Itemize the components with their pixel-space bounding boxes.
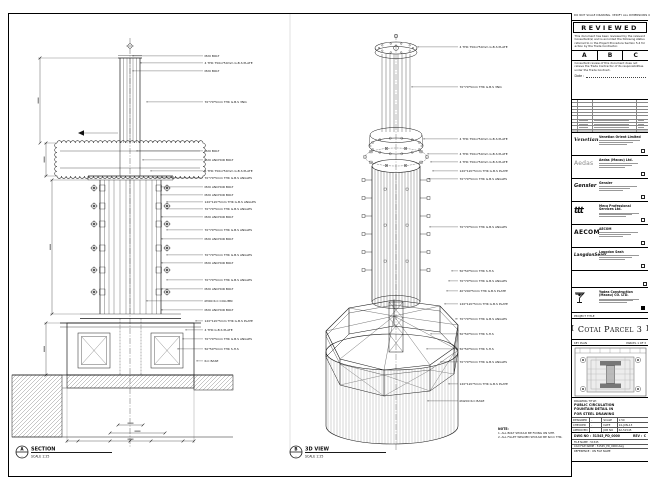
address-lines: [599, 165, 632, 166]
consultant-row-langdon-seah: LangdonSeah Langdon Seah: [572, 248, 648, 271]
leader-label: 70*70*5mm THK G.B.S 3NO.: [460, 85, 503, 89]
leader-label: Ø4200 R.C BASE: [460, 398, 485, 403]
review-checkbox[interactable]: [641, 264, 645, 268]
leader-label: 70*70*5mm THK G.B.S ANGLES: [460, 177, 508, 181]
leader-label: 40*200*5mm THK G.B.S PLATE: [460, 289, 507, 293]
address-lines: [599, 214, 632, 215]
leader-label: 70*70*5mm THK G.B.S ANGLES: [460, 360, 508, 364]
stamp-option-b: B: [598, 51, 624, 60]
address-lines: [599, 232, 638, 233]
consultant-name: AECOM: [599, 228, 646, 232]
column-ornament-icon: ♜: [572, 325, 575, 333]
aecom-logo: AECOM: [574, 227, 599, 246]
reference-row: REFERENCE : ON FILE NAME: [572, 448, 648, 453]
address-lines: [599, 257, 632, 258]
consultant-name: Gensler: [599, 182, 646, 186]
address-lines: [599, 300, 633, 301]
iso-scale: SCALE 1:25: [305, 455, 323, 459]
section-view-title: SECTION: [31, 447, 55, 453]
aedas-logo: Aedas: [574, 158, 599, 177]
address-lines: [599, 167, 625, 168]
consultant-name: Venetian Orient Limited: [599, 136, 646, 140]
stamp-paragraph-1: This document has been reviewed by the r…: [572, 34, 648, 50]
rev-label: REV :: [633, 434, 642, 438]
consultant-row-gensler: Gensler Gensler: [572, 179, 648, 202]
leader-label: Ø300 R.C COLUMN: [205, 298, 233, 303]
leader-label: 70*70*5mm THK G.B.S ANGLES: [460, 317, 508, 321]
consultant-row-empty: [572, 271, 648, 288]
leader-label: 70*70*5mm THK G.B.S ANGLES: [460, 279, 508, 283]
leader-label: 70*70*5mm THK G.B.S ANGLES: [460, 225, 508, 229]
leader-label: 70*70*5mm THK G.B.S ANGLES: [205, 228, 253, 232]
consultant-row-meca: ttt Meca Professional Services Ltd.: [572, 202, 648, 225]
address-lines: [599, 163, 638, 164]
address-lines: [599, 236, 623, 237]
project-title-box: ♜ Cotai Parcel 3 ♜: [572, 319, 648, 340]
stamp-option-a: A: [572, 51, 598, 60]
leader-label: 70*70*5mm THK G.B.S ANGLES: [205, 337, 253, 341]
spare-box: [572, 462, 648, 477]
note-block: NOTE:1. ALL BOLT SHOULD BE FIXING ON SIT…: [498, 427, 563, 439]
glass-icon: [574, 292, 585, 305]
address-lines: [599, 234, 631, 235]
reference-value: ON FILE NAME: [592, 450, 611, 453]
contractor-block: Yadea Construction (Macau) CO. LTD.: [572, 288, 648, 313]
leader-label: 70*70*5mm THK G.B.S ANGLES: [205, 253, 253, 257]
leader-label: M20 ANCHOR BOLT: [205, 237, 234, 241]
drawing-title-line: FOR STEEL DRAWING: [574, 412, 646, 416]
address-lines: [599, 188, 630, 189]
drawing-canvas: M20 BOLT4 THK 750x750mm G.B.S PLATEM20 B…: [8, 13, 571, 477]
leader-label: 120*120*5mm THK G.B.S PLATE: [460, 169, 509, 173]
dwg-no: 51545_PD_0000: [593, 434, 620, 438]
leader-label: M20 ANCHOR BOLT: [205, 158, 234, 162]
column-ornament-icon: ♜: [645, 325, 648, 333]
leader-label: 50*50*5mm THK S.H.S: [205, 347, 239, 351]
note-line: 2. ALL FILLET WELDED SHOULD BE 6mm THK.: [498, 435, 563, 439]
contractor-name: Yadea Construction (Macau) CO. LTD.: [599, 291, 646, 298]
review-checkbox[interactable]: [641, 172, 645, 176]
iso-view: [326, 34, 458, 450]
title-block-column: DO NOT SCALE DRAWING. VERIFY ALL DIMENSI…: [571, 13, 648, 477]
gensler-logo: Gensler: [574, 181, 599, 200]
leader-label: 50*50*5mm THK S.H.S: [460, 269, 494, 273]
leader-label: 120*120*5mm THK G.B.S PLATE: [460, 302, 509, 306]
leader-label: 4 THK G.B.S PLATE: [205, 328, 233, 332]
iso-title: B-3D VIEWSCALE 1:25: [290, 446, 386, 459]
leader-label: 120*120*5mm THK G.B.S PLATE: [205, 319, 254, 323]
leader-label: 50*50*5mm THK S.H.S: [460, 332, 494, 336]
stamp-date-row: Date :: [572, 73, 648, 80]
leader-label: M20 ANCHOR BOLT: [205, 308, 234, 312]
reviewed-stamp: REVIEWED This document has been reviewed…: [572, 21, 648, 100]
key-plan-caption: PARCEL 1 OF 3: [626, 341, 646, 345]
iso-view-title: 3D VIEW: [305, 447, 330, 453]
iso-bubble: B: [294, 447, 297, 452]
leader-label: 120*120*5mm THK G.B.S ANGLES: [205, 200, 257, 204]
key-plan-thumbnail: [574, 347, 647, 397]
leader-label: M20 BOLT: [205, 69, 220, 73]
review-checkbox[interactable]: [643, 282, 647, 286]
leader-label: 4 THK 750x750mm G.B.S PLATE: [205, 61, 253, 65]
address-lines: [599, 259, 625, 260]
leader-label: 50*50*5mm THK S.H.S: [460, 347, 494, 351]
leader-label: 4 THK 750x750mm G.B.S PLATE: [460, 152, 508, 156]
contractor-mark: [641, 306, 645, 310]
leader-label: M20 ANCHOR BOLT: [205, 287, 234, 291]
dwg-no-label: DWG NO :: [574, 434, 591, 438]
address-lines: [599, 190, 623, 191]
leader-label: M20 ANCHOR BOLT: [205, 215, 234, 219]
leader-label: M20 ANCHOR BOLT: [205, 185, 234, 189]
rev-value: C: [644, 434, 646, 438]
drawing-sheet: M20 BOLT4 THK 750x750mm G.B.S PLATEM20 B…: [0, 0, 650, 488]
drawing-title-block: DRAWING TITLE: PUBLIC CIRCULATION FOUNTA…: [572, 398, 648, 462]
stamp-date-label: Date :: [575, 74, 585, 78]
leader-label: 4 THK 750x750mm G.B.S PLATE: [205, 169, 253, 173]
leader-label: 4 THK 750x750mm G.B.S PLATE: [460, 45, 508, 49]
leader-label: R.C BASE: [205, 359, 219, 363]
leader-label: 4 THK 750x750mm G.B.S PLATE: [460, 160, 508, 164]
address-lines: [599, 140, 640, 141]
review-checkbox[interactable]: [641, 241, 645, 245]
review-checkbox[interactable]: [641, 218, 645, 222]
leader-label: M20 BOLT: [205, 149, 220, 153]
address-lines: [599, 142, 633, 143]
consultant-row-aedas: Aedas Aedas (Macau) Ltd.: [572, 156, 648, 179]
drawing-title: PUBLIC CIRCULATION FOUNTAIN DETAIL IN FO…: [572, 403, 648, 417]
langdon-seah-logo: LangdonSeah: [574, 250, 599, 269]
section-view: [12, 14, 290, 477]
reference-label: REFERENCE :: [574, 450, 591, 453]
leader-label: 4 THK 750x750mm G.B.S PLATE: [460, 137, 508, 141]
leader-label: M20 ANCHOR BOLT: [205, 261, 234, 265]
dwg-no-row: DWG NO : 51545_PD_0000 REV : C: [572, 432, 648, 439]
section-bubble: A: [20, 447, 24, 452]
leader-label: M20 BOLT: [205, 54, 220, 58]
review-checkbox[interactable]: [641, 149, 645, 153]
address-lines: [599, 302, 627, 303]
section-title: A-SECTIONSCALE 1:25: [16, 446, 112, 459]
stamp-paragraph-2: Consultant review of this document does …: [572, 61, 648, 73]
address-lines: [599, 216, 626, 217]
stamp-date-line: [586, 75, 645, 78]
revision-table: [572, 100, 648, 133]
iso-labels: 4 THK 750x750mm G.B.S PLATE70*70*5mm THK…: [412, 45, 509, 403]
leader-label: 70*70*5mm THK G.B.S ANGLES: [205, 207, 253, 211]
consultant-name: Meca Professional Services Ltd.: [599, 205, 646, 212]
address-lines: [599, 255, 639, 256]
leader-label: 70*70*5mm THK G.B.S ANGLES: [205, 278, 253, 282]
leader-label: 70*70*5mm THK G.B.S ANGLES: [205, 176, 253, 180]
address-lines: [599, 186, 637, 187]
leader-label: 120*120*5mm THK G.B.S PLATE: [460, 382, 509, 386]
leader-label: 70*70*5mm THK G.B.S 3NO.: [205, 100, 248, 104]
address-lines: [599, 299, 639, 300]
sheet-note: DO NOT SCALE DRAWING. VERIFY ALL DIMENSI…: [572, 13, 648, 21]
key-plan-box: [572, 346, 648, 398]
consultant-name: Langdon Seah: [599, 251, 646, 255]
section-labels: M20 BOLT4 THK 750x750mm G.B.S PLATEM20 B…: [133, 54, 257, 363]
venetian-logo: Venetian: [574, 135, 599, 154]
stamp-option-c: C: [623, 51, 648, 60]
consultant-name: Aedas (Macau) Ltd.: [599, 159, 646, 163]
section-scale: SCALE 1:25: [31, 455, 49, 459]
leader-label: M20 ANCHOR BOLT: [205, 193, 234, 197]
stamp-status-options: A B C: [572, 50, 648, 61]
address-lines: [599, 144, 627, 145]
consultant-row-aecom: AECOM AECOM: [572, 225, 648, 248]
address-lines: [599, 213, 639, 214]
consultant-row-venetian: Venetian Venetian Orient Limited: [572, 133, 648, 156]
revision-header-row: [572, 129, 648, 132]
meca-logo: ttt: [574, 204, 599, 223]
stamp-title: REVIEWED: [573, 22, 647, 33]
key-plan-label: KEY PLAN: [574, 341, 587, 345]
project-title: Cotai Parcel 3: [578, 325, 642, 334]
contractor-logo: [574, 290, 599, 311]
review-checkbox[interactable]: [641, 195, 645, 199]
